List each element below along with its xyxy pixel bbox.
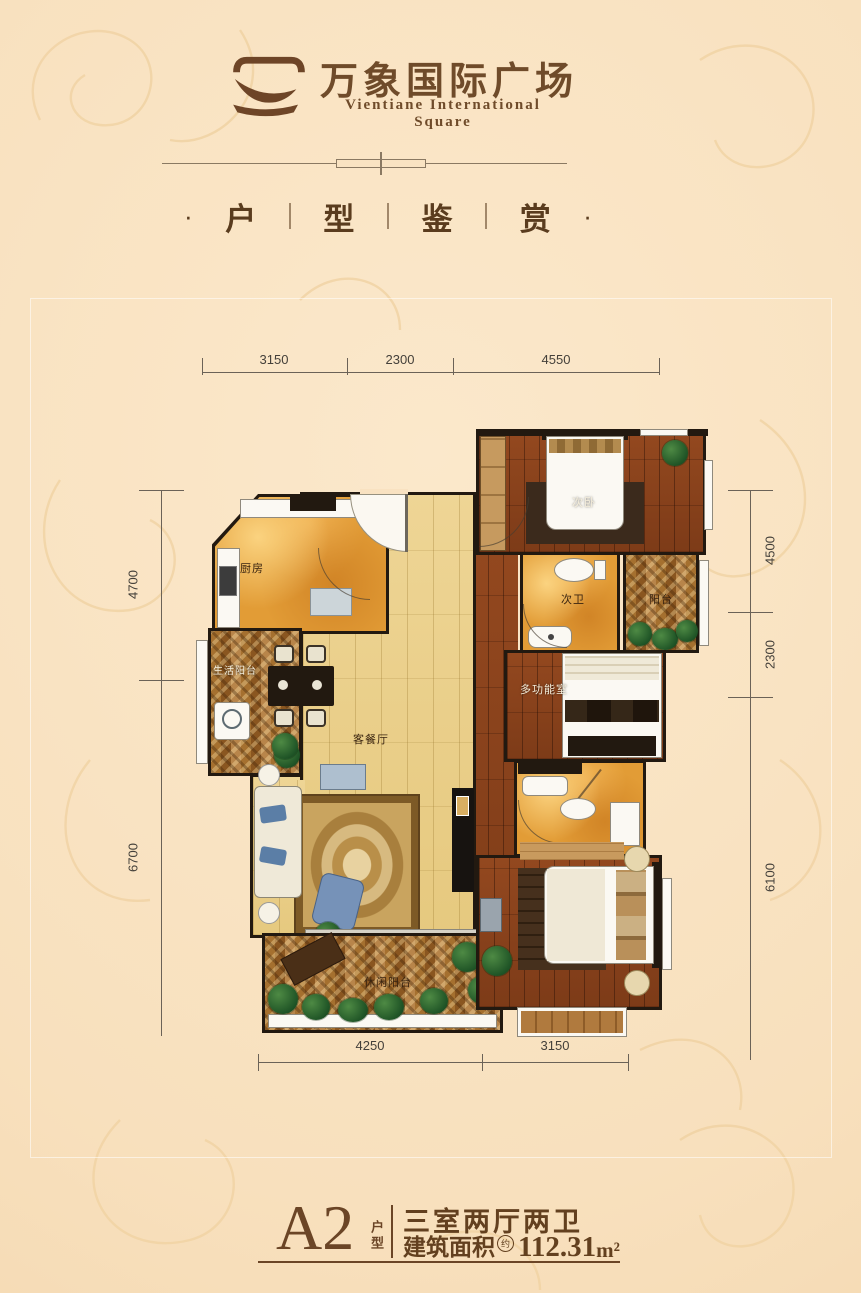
plant-icon [628,622,652,646]
plant-icon [272,733,298,759]
dim-tick [202,358,203,375]
room-label-second-bedroom: 次卧 [554,494,614,510]
plate-icon [312,680,322,690]
washer-drum-icon [222,709,242,729]
dim-left-2: 6700 [126,828,141,888]
master-pillows-icon [616,870,646,960]
nightstand-icon [624,970,650,996]
dim-tick [728,697,773,698]
dim-line-left [161,490,162,1036]
dim-tick [139,680,184,681]
footer-divider [391,1205,393,1258]
plant-icon [420,988,448,1014]
room-label-leisure-balcony: 休闲阳台 [348,974,428,990]
area-unit: m² [596,1238,620,1262]
dim-tick [728,490,773,491]
range-hood-icon [290,496,336,511]
section-separator [485,203,487,229]
master-blanket-icon [547,869,605,961]
dim-line-top [202,372,660,373]
side-balcony-window [699,560,709,646]
section-char-1: 户 [225,194,256,239]
dim-line-right [750,490,751,1060]
room-label-kitchen: 厨房 [222,560,282,576]
room-label-multi: 多功能室 [504,681,584,697]
section-separator [289,203,291,229]
multi-bed-cushions-icon [565,700,659,722]
plate-icon [278,680,288,690]
second-bedroom-window [640,429,688,436]
bath-closet [610,802,640,846]
dim-tick [453,358,454,375]
plant-icon [338,998,368,1022]
area-line: 建筑面积约112.31m² [403,1228,620,1262]
area-label: 建筑面积 [403,1228,495,1262]
plant-icon [302,994,330,1020]
master-bay-window [518,1008,626,1036]
section-separator [387,203,389,229]
dim-right-2: 2300 [763,625,778,685]
dim-tick [659,358,660,375]
room-label-side-balcony: 阳台 [631,591,691,607]
dim-bottom-2: 3150 [525,1038,585,1053]
chair-icon [306,709,326,727]
divider-tick [380,152,382,175]
bed-bench-icon [568,736,656,756]
toilet-icon [554,558,594,582]
unit-type-label: 户型 [367,1220,386,1252]
section-dot-left: · [184,211,193,221]
sofa-icon [254,786,302,898]
brand-logo-icon [226,50,312,120]
multi-bed-pillows-icon [565,656,659,680]
plant-icon [652,628,678,650]
footer-rule [258,1261,620,1263]
section-char-3: 鉴 [422,194,453,239]
second-bedroom-side-window [704,460,713,530]
dim-top-2: 2300 [370,352,430,367]
toilet-tank-icon [594,560,606,580]
dim-tick [139,490,184,491]
plant-icon [482,946,512,976]
dim-top-1: 3150 [244,352,304,367]
dim-tick [258,1054,259,1071]
bedroom-corridor [520,842,624,860]
dim-tick [482,1054,483,1071]
dim-tick [728,612,773,613]
bath-counter-icon [518,763,582,774]
room-label-life-balcony: 生活阳台 [200,662,270,677]
section-title: · 户 型 鉴 赏 · [184,196,592,236]
dim-tick [628,1054,629,1071]
poster-page: 万象国际广场 Vientiane International Square · … [0,0,861,1293]
tv-icon [456,796,469,816]
chair-icon [306,645,326,663]
master-side-window [662,878,672,970]
plant-icon [374,994,404,1020]
section-char-4: 赏 [520,194,551,239]
area-note-badge: 约 [497,1235,514,1252]
room-label-second-bath: 次卫 [543,591,603,607]
nightstand-icon [624,846,650,872]
plant-icon [662,440,688,466]
dim-left-1: 4700 [126,555,141,615]
page-subtitle: Vientiane International Square [316,97,570,131]
desk-icon [480,898,502,932]
side-table-icon [258,902,280,924]
sink-icon [522,776,568,796]
side-table-icon [258,764,280,786]
dim-right-1: 4500 [763,521,778,581]
dim-line-bottom [258,1062,628,1063]
dim-top-3: 4550 [526,352,586,367]
room-label-living-dining: 客餐厅 [341,731,401,747]
plant-icon [676,620,698,642]
plant-icon [268,984,298,1014]
section-dot-right: · [583,211,592,221]
dim-bottom-1: 4250 [340,1038,400,1053]
unit-code: A2 [276,1196,354,1260]
dim-tick [347,358,348,375]
chair-icon [274,709,294,727]
chair-icon [274,645,294,663]
section-char-2: 型 [323,194,354,239]
dim-right-3: 6100 [763,848,778,908]
life-balcony-window [196,640,208,764]
area-value: 112.31 [518,1233,596,1262]
toilet-icon [560,798,596,820]
bed-pillow-icon [549,439,621,453]
coffee-table-icon [320,764,366,790]
entry-door-leaf [405,494,408,552]
